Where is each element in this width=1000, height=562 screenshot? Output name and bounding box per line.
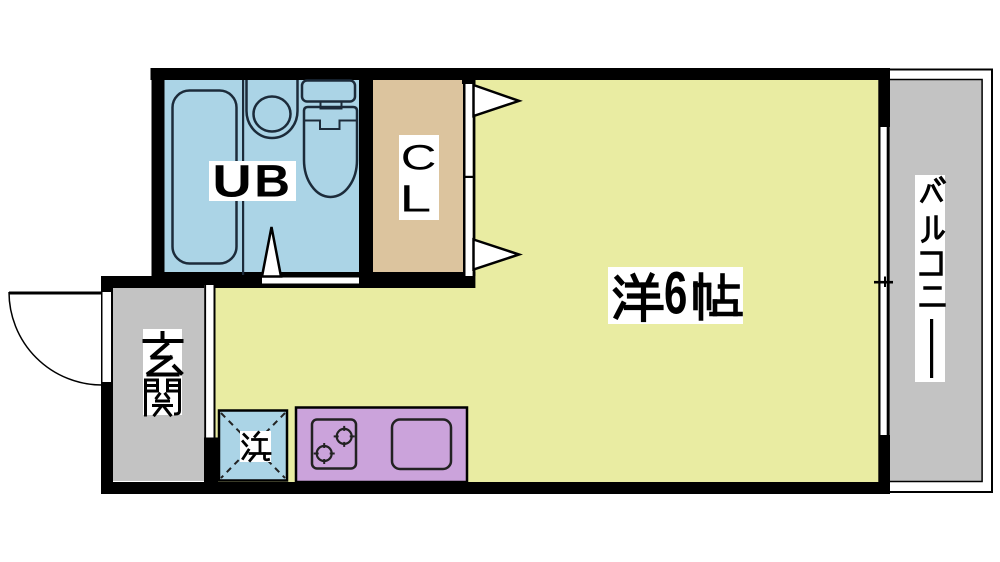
svg-text:6: 6 [664, 259, 687, 326]
svg-text:L: L [400, 178, 432, 220]
svg-text:U: U [212, 156, 251, 206]
svg-text:B: B [254, 157, 290, 207]
svg-text:C: C [401, 138, 437, 178]
